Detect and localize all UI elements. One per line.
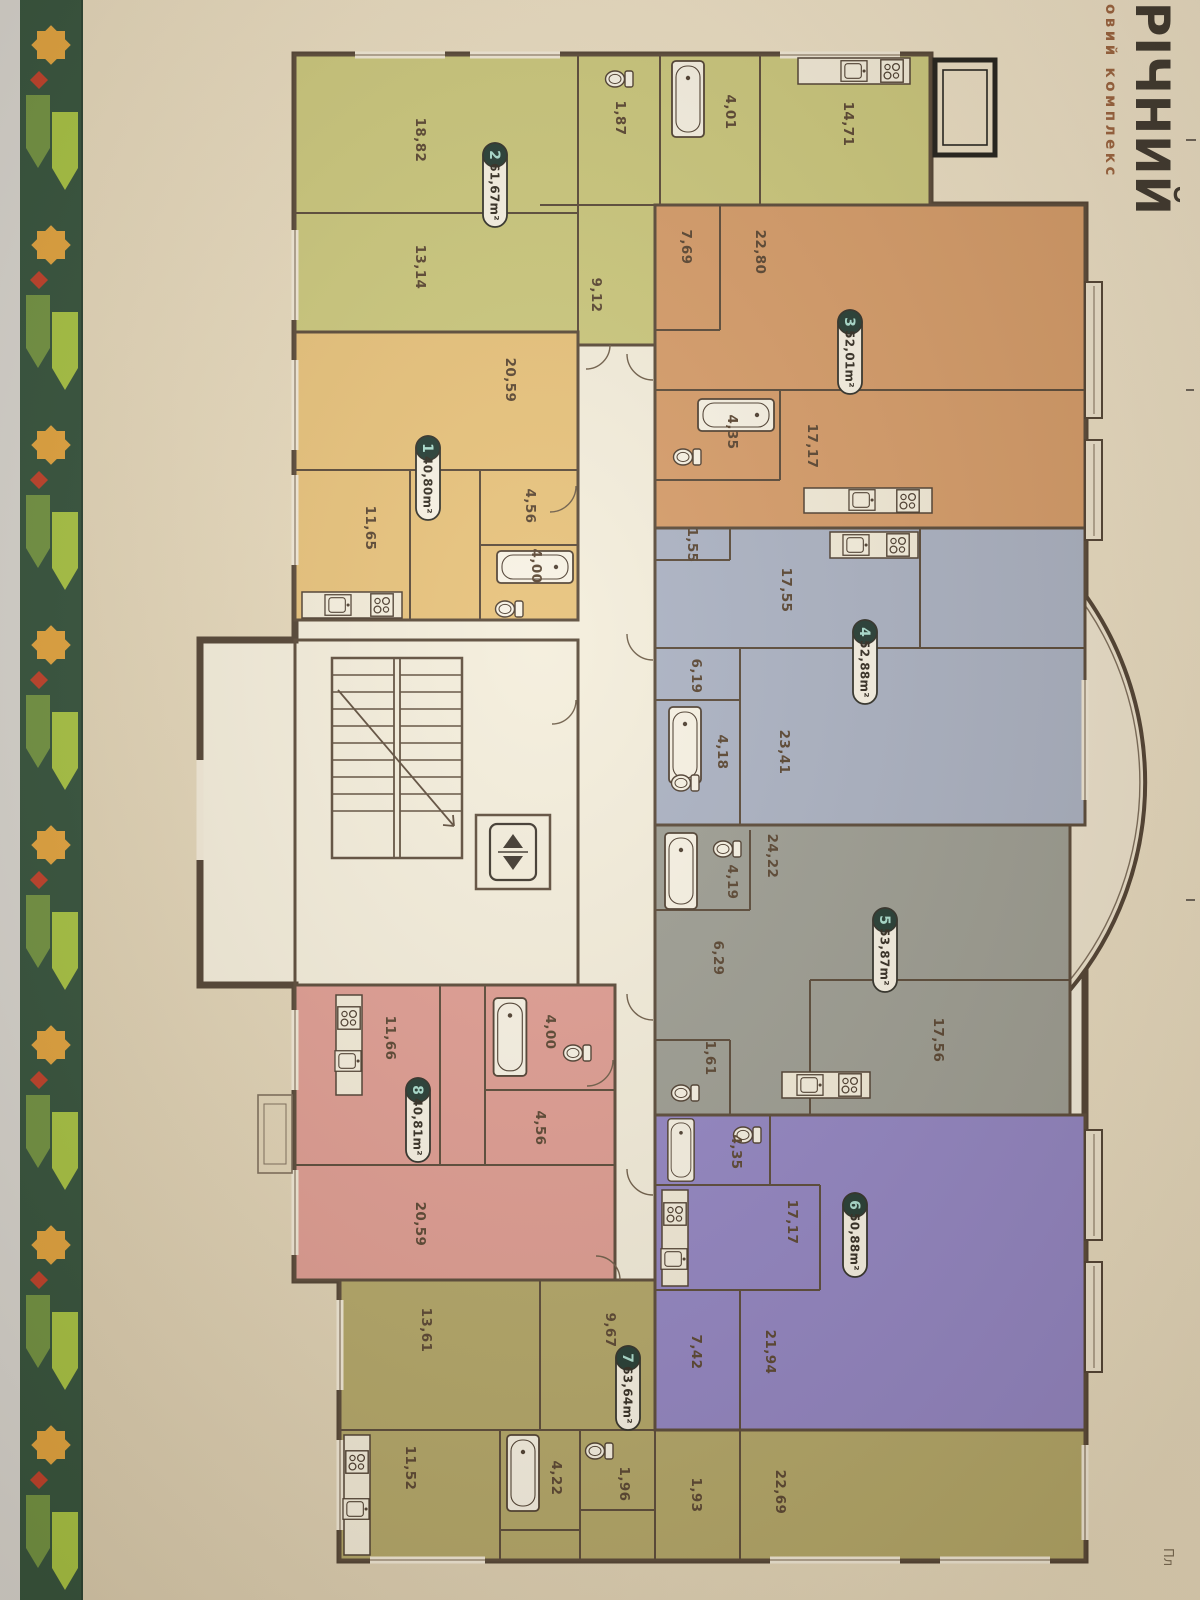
room-area-label: 17,17 xyxy=(804,424,820,469)
room-area-label: 22,69 xyxy=(772,1470,788,1515)
stove-icon xyxy=(881,60,903,82)
room-area-label: 4,01 xyxy=(722,95,738,130)
page-corner-text: Пл xyxy=(1160,1548,1175,1566)
apartment-zone-6 xyxy=(655,1115,1085,1430)
sink-icon xyxy=(849,490,875,511)
room-area-label: 6,29 xyxy=(710,941,726,976)
room-area-label: 21,94 xyxy=(762,1330,778,1375)
room-area-label: 1,93 xyxy=(688,1478,704,1513)
room-area-label: 4,35 xyxy=(728,1135,744,1170)
room-area-label: 7,69 xyxy=(678,230,694,265)
stove-icon xyxy=(346,1451,368,1473)
room-area-label: 4,56 xyxy=(522,489,538,524)
room-area-label: 9,12 xyxy=(588,278,604,313)
room-area-label: 4,22 xyxy=(548,1461,564,1496)
page-edge xyxy=(0,0,20,1600)
room-area-label: 13,61 xyxy=(418,1308,434,1353)
badge-area: 50,88m² xyxy=(848,1213,862,1271)
toilet-icon xyxy=(586,1443,614,1459)
sink-icon xyxy=(843,535,869,556)
badge-number: 6 xyxy=(846,1200,862,1210)
badge-area: 40,80m² xyxy=(421,456,435,514)
toilet-icon xyxy=(714,841,742,857)
apartment-badge-7: 7 63,64m² xyxy=(616,1346,640,1430)
room-area-label: 18,82 xyxy=(412,118,428,163)
badge-number: 5 xyxy=(876,915,892,925)
apartment-badge-4: 4 52,88m² xyxy=(853,620,877,704)
badge-area: 53,87m² xyxy=(878,928,892,986)
room-area-label: 1,61 xyxy=(702,1041,718,1076)
badge-area: 61,67m² xyxy=(488,163,502,221)
bathtub-icon xyxy=(494,998,527,1076)
badge-area: 40,81m² xyxy=(411,1098,425,1156)
apartment-badge-1: 1 40,80m² xyxy=(416,436,440,520)
room-area-label: 7,42 xyxy=(688,1335,704,1370)
room-area-label: 4,56 xyxy=(532,1111,548,1146)
room-area-label: 1,96 xyxy=(616,1467,632,1502)
room-area-label: 4,18 xyxy=(714,735,730,770)
bathtub-icon xyxy=(672,61,704,137)
sink-icon xyxy=(325,595,351,616)
apartment-badge-6: 6 50,88m² xyxy=(843,1193,867,1277)
apartment-badge-8: 8 40,81m² xyxy=(406,1078,430,1162)
bathtub-icon xyxy=(665,833,697,909)
brand-title: РІЧНИЙ xyxy=(1124,2,1179,216)
badge-number: 2 xyxy=(486,150,502,160)
ornament-border xyxy=(20,0,82,1600)
room-area-label: 4,00 xyxy=(542,1015,558,1050)
badge-number: 7 xyxy=(619,1353,635,1363)
badge-area: 52,88m² xyxy=(858,640,872,698)
room-area-label: 11,65 xyxy=(362,506,378,551)
stove-icon xyxy=(338,1007,360,1029)
badge-number: 3 xyxy=(841,317,857,327)
apartment-badge-5: 5 53,87m² xyxy=(873,908,897,992)
room-area-label: 17,55 xyxy=(778,568,794,613)
toilet-icon xyxy=(564,1045,592,1061)
room-area-label: 11,52 xyxy=(402,1446,418,1491)
room-area-label: 20,59 xyxy=(412,1202,428,1247)
badge-number: 8 xyxy=(409,1085,425,1095)
room-area-label: 11,66 xyxy=(382,1016,398,1061)
photographed-floor-plan-page: РІЧНИЙ овий комплекс Пл xyxy=(0,0,1200,1600)
toilet-icon xyxy=(672,1085,700,1101)
badge-area: 63,64m² xyxy=(621,1366,635,1424)
room-area-label: 4,19 xyxy=(724,865,740,900)
toilet-icon xyxy=(672,775,700,791)
sink-icon xyxy=(335,1051,361,1072)
room-area-label: 1,55 xyxy=(684,528,700,563)
stove-icon xyxy=(839,1074,861,1096)
room-area-label: 20,59 xyxy=(502,358,518,403)
stove-icon xyxy=(664,1203,686,1225)
badge-area: 52,01m² xyxy=(843,330,857,388)
sink-icon xyxy=(343,1499,369,1520)
room-area-label: 4,35 xyxy=(724,415,740,450)
room-area-label: 1,87 xyxy=(612,101,628,136)
room-area-label: 17,56 xyxy=(930,1018,946,1063)
toilet-icon xyxy=(674,449,702,465)
bathtub-icon xyxy=(669,707,701,783)
room-area-label: 4,00 xyxy=(528,549,544,584)
toilet-icon xyxy=(606,71,634,87)
room-area-label: 6,19 xyxy=(688,659,704,694)
stove-icon xyxy=(887,534,909,556)
room-area-label: 14,71 xyxy=(840,102,856,147)
room-area-label: 17,17 xyxy=(784,1200,800,1245)
room-area-label: 22,80 xyxy=(752,230,768,275)
apartment-badge-2: 2 61,67m² xyxy=(483,143,507,227)
floor-plan-canvas: РІЧНИЙ овий комплекс Пл xyxy=(0,0,1200,1600)
badge-number: 1 xyxy=(419,443,435,453)
room-area-label: 9,67 xyxy=(602,1313,618,1348)
stove-icon xyxy=(371,594,393,616)
sink-icon xyxy=(797,1075,823,1096)
toilet-icon xyxy=(496,601,524,617)
room-area-label: 23,41 xyxy=(776,730,792,775)
bathtub-icon xyxy=(507,1435,539,1511)
room-area-label: 13,14 xyxy=(412,245,428,290)
sink-icon xyxy=(661,1249,687,1270)
apartment-badge-3: 3 52,01m² xyxy=(838,310,862,394)
room-area-label: 24,22 xyxy=(764,834,780,879)
sink-icon xyxy=(841,61,867,82)
stove-icon xyxy=(897,490,919,512)
brand-subtitle: овий комплекс xyxy=(1102,4,1120,179)
badge-number: 4 xyxy=(856,627,872,637)
bathtub-icon xyxy=(668,1119,694,1181)
